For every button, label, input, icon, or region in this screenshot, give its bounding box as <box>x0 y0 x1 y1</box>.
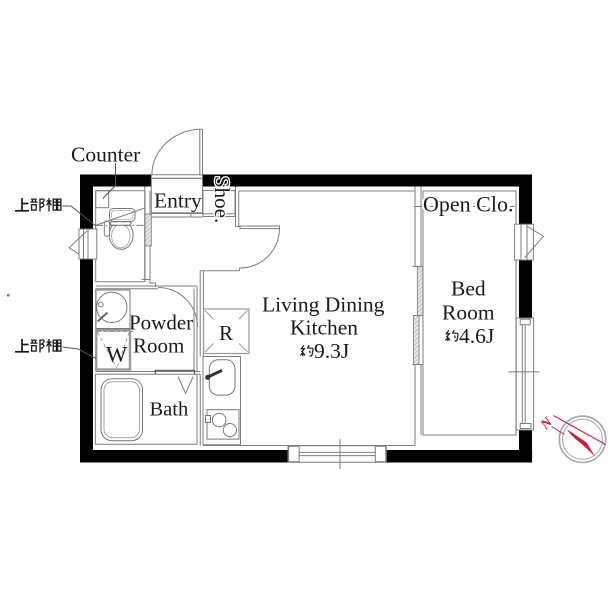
svg-text:Bath: Bath <box>150 399 189 421</box>
svg-text:Living Dining: Living Dining <box>262 293 385 317</box>
svg-text:Counter: Counter <box>71 143 140 167</box>
svg-text:Kitchen: Kitchen <box>290 316 358 340</box>
svg-text:Room: Room <box>442 301 495 325</box>
svg-text:Room: Room <box>133 334 184 358</box>
svg-text:Entry: Entry <box>154 189 202 213</box>
svg-text:N: N <box>537 414 556 433</box>
svg-text:9.3J: 9.3J <box>314 339 349 363</box>
svg-text:Shoe.: Shoe. <box>210 176 234 223</box>
svg-text:R: R <box>219 321 233 345</box>
svg-text:Bed: Bed <box>451 277 486 301</box>
svg-text:Powder: Powder <box>129 311 193 335</box>
svg-text:W: W <box>106 342 128 367</box>
svg-text:Open Clo.: Open Clo. <box>423 192 513 217</box>
svg-text:4.6J: 4.6J <box>459 324 494 348</box>
